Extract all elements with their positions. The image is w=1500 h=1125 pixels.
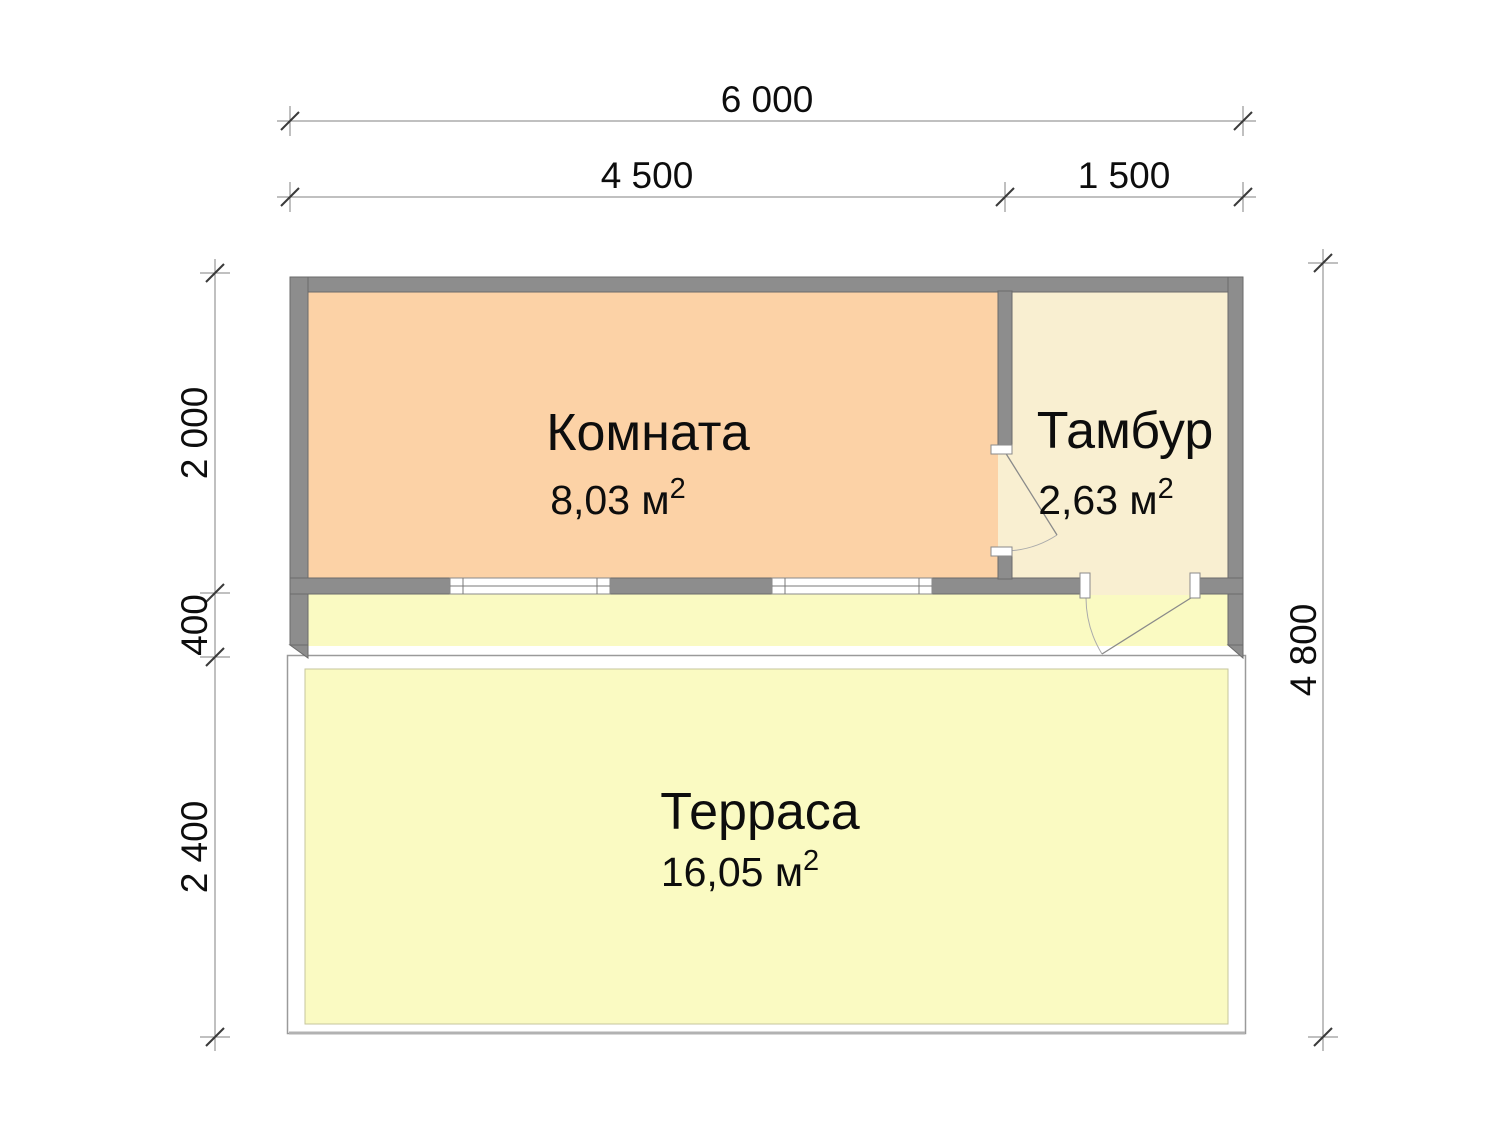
window-1 bbox=[450, 578, 610, 594]
dim-top-split: 4 500 1 500 bbox=[277, 155, 1256, 212]
door-interior-opening bbox=[998, 453, 1012, 548]
door-exterior-jamb-left bbox=[1080, 573, 1090, 598]
wall-bottom-seg-1 bbox=[290, 578, 450, 594]
room-komnata-area-value: 8,03 м bbox=[550, 477, 669, 523]
dim-right-total: 4 800 bbox=[1283, 249, 1338, 1051]
floor-plan-svg: 6 000 4 500 1 500 2 000 400 2 400 4 800 bbox=[0, 0, 1500, 1125]
dim-label-top-left: 4 500 bbox=[601, 155, 694, 196]
room-komnata-area: 8,03 м2 bbox=[550, 473, 686, 523]
window-2 bbox=[772, 578, 932, 594]
room-tambur-area-sup: 2 bbox=[1158, 473, 1174, 505]
room-terrasa-area: 16,05 м2 bbox=[661, 845, 819, 895]
wall-bottom-seg-2 bbox=[610, 578, 772, 594]
room-komnata-name: Комната bbox=[546, 404, 750, 462]
porch-floor bbox=[308, 594, 1228, 646]
room-terrasa-area-sup: 2 bbox=[803, 845, 819, 877]
dim-top-total: 6 000 bbox=[277, 79, 1256, 136]
floor-plan-page: 6 000 4 500 1 500 2 000 400 2 400 4 800 bbox=[0, 0, 1500, 1125]
dim-label-top-right: 1 500 bbox=[1078, 155, 1171, 196]
room-terrasa-name: Терраса bbox=[660, 783, 860, 841]
room-tambur-area: 2,63 м2 bbox=[1038, 473, 1174, 523]
door-exterior-jamb-right bbox=[1190, 573, 1200, 598]
dim-label-left-room: 2 000 bbox=[174, 387, 215, 480]
room-terrasa-area-value: 16,05 м bbox=[661, 849, 803, 895]
dim-label-top-total: 6 000 bbox=[721, 79, 814, 120]
terrace-floor bbox=[305, 669, 1228, 1024]
room-komnata-area-sup: 2 bbox=[670, 473, 686, 505]
wall-bottom-seg-4 bbox=[1195, 578, 1243, 594]
wall-interior-upper bbox=[998, 291, 1012, 445]
dim-left-column: 2 000 400 2 400 bbox=[174, 259, 230, 1051]
room-tambur-name: Тамбур bbox=[1037, 402, 1214, 460]
wall-bottom-seg-3 bbox=[932, 578, 1085, 594]
door-interior-jamb-bottom bbox=[991, 547, 1012, 556]
door-interior-jamb-top bbox=[991, 445, 1012, 454]
wall-interior-lower bbox=[998, 556, 1012, 579]
dim-label-left-porch: 400 bbox=[174, 594, 215, 656]
room-tambur-area-value: 2,63 м bbox=[1038, 477, 1157, 523]
door-exterior-opening bbox=[1085, 578, 1195, 595]
wall-top bbox=[290, 277, 1243, 292]
dim-label-left-terrace: 2 400 bbox=[174, 801, 215, 894]
dim-label-right-total: 4 800 bbox=[1283, 604, 1324, 697]
